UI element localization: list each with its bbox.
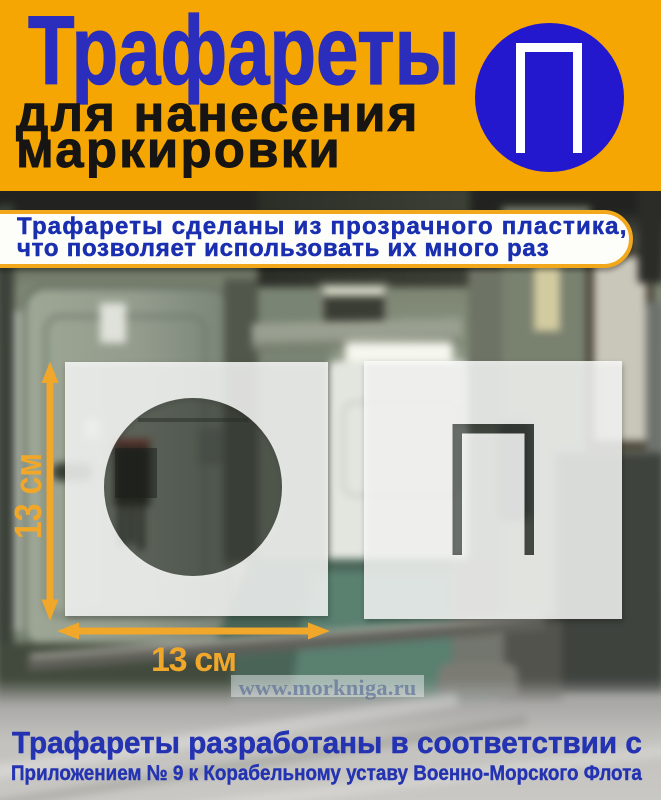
svg-text:13 см: 13 см (151, 641, 237, 679)
svg-text:13 см: 13 см (8, 453, 50, 539)
